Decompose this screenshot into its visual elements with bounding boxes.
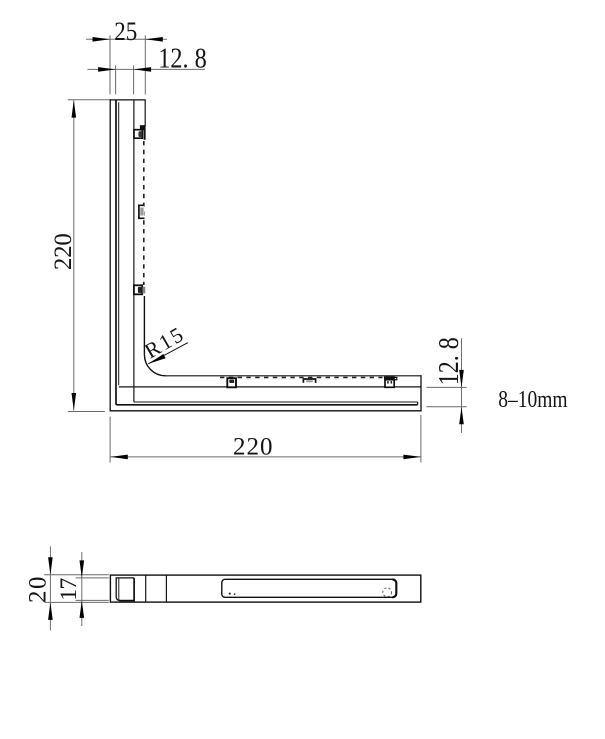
svg-text:25: 25 [114,17,137,46]
svg-text:12. 8: 12. 8 [434,337,465,385]
svg-text:220: 220 [233,433,272,460]
svg-text:20: 20 [25,577,52,604]
svg-text:220: 220 [50,233,77,270]
svg-text:8–10mm: 8–10mm [498,387,568,413]
svg-text:12. 8: 12. 8 [158,44,207,75]
svg-text:17: 17 [56,577,82,600]
